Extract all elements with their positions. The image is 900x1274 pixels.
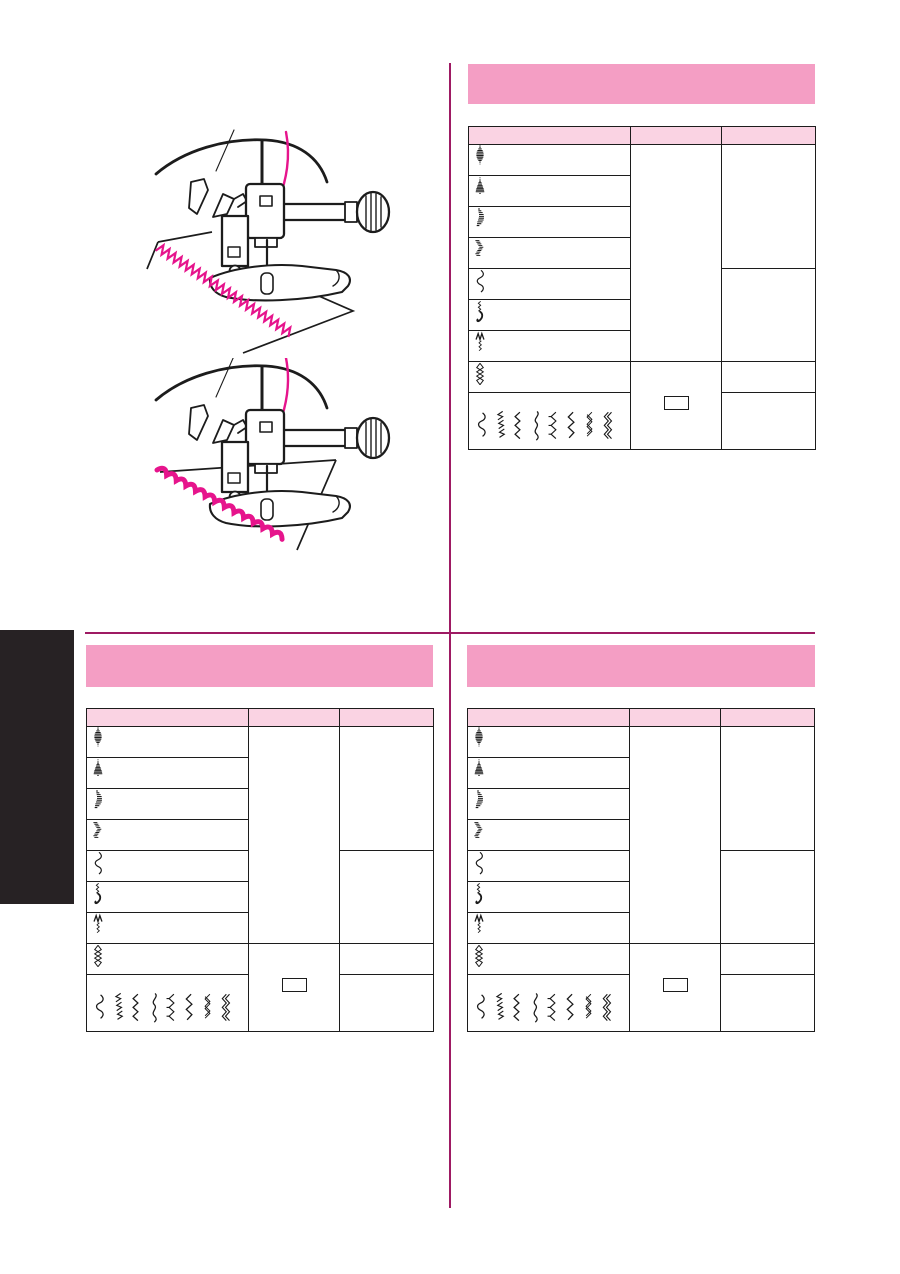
table-header-cell bbox=[721, 709, 815, 727]
satin-slant-stitch-icon bbox=[474, 238, 486, 263]
pointed-wave-stitch-icon bbox=[183, 991, 196, 1023]
section-banner-text bbox=[86, 645, 433, 661]
stitch-pattern-cell bbox=[87, 944, 249, 975]
pointed-wave-stitch-icon bbox=[565, 409, 578, 441]
diamond-chain-stitch-icon bbox=[92, 944, 104, 969]
stitch-table-section bbox=[468, 126, 815, 450]
scallop-stitch-sewing-illustration bbox=[140, 358, 425, 573]
overlock-stitch-icon bbox=[165, 991, 178, 1023]
empty-option-box-icon bbox=[664, 396, 689, 410]
overlock-stitch-icon bbox=[546, 991, 559, 1023]
stitch-pattern-cell bbox=[469, 238, 631, 269]
section-banner bbox=[467, 645, 815, 687]
stitch-pattern-cell bbox=[87, 913, 249, 944]
scallop-wave-stitch-icon bbox=[93, 991, 106, 1023]
decorative-patterns-cell bbox=[468, 975, 630, 1032]
decorative-patterns-cell bbox=[87, 975, 249, 1032]
setting-cell bbox=[340, 975, 434, 1032]
stitch-pattern-cell bbox=[468, 882, 630, 913]
satin-triangle-stitch-icon bbox=[473, 758, 485, 783]
table-header-cell bbox=[249, 709, 340, 727]
zigzag-stitch-icon bbox=[511, 409, 524, 441]
manual-page: { "document": { "kind": "sewing-machine-… bbox=[0, 0, 900, 1274]
setting-cell-merged bbox=[722, 269, 816, 362]
stitch-pattern-cell bbox=[469, 145, 631, 176]
scallop-wave-stitch-icon bbox=[475, 409, 488, 441]
scallop-wave-stitch-icon bbox=[92, 851, 104, 876]
stitch-settings-table bbox=[468, 126, 816, 450]
smooth-wave-stitch-icon bbox=[147, 991, 160, 1023]
satin-triangle-stitch-icon bbox=[474, 176, 486, 201]
zigzag-stitch-icon bbox=[510, 991, 523, 1023]
stitch-pattern-cell bbox=[468, 944, 630, 975]
satin-slant-stitch-icon bbox=[92, 820, 104, 845]
shell-tuck-stitch-icon bbox=[473, 882, 485, 907]
setting-cell-merged bbox=[340, 727, 434, 851]
table-header-cell bbox=[340, 709, 434, 727]
double-zigzag-stitch-icon bbox=[601, 409, 614, 441]
table-header-cell bbox=[468, 709, 630, 727]
setting-cell bbox=[722, 393, 816, 450]
stitch-pattern-cell bbox=[469, 269, 631, 300]
crossed-zigzag-stitch-icon bbox=[583, 409, 596, 441]
table-header-cell bbox=[630, 709, 721, 727]
setting-cell-merged bbox=[722, 145, 816, 269]
decorative-patterns-cell bbox=[469, 393, 631, 450]
smocking-stitch-icon bbox=[474, 331, 486, 356]
setting-cell-merged bbox=[721, 851, 815, 944]
feather-stitch-icon bbox=[492, 991, 505, 1023]
stitch-settings-table bbox=[467, 708, 815, 1032]
scallop-wave-stitch-icon bbox=[474, 991, 487, 1023]
stitch-pattern-cell bbox=[468, 820, 630, 851]
stitch-pattern-cell bbox=[469, 207, 631, 238]
diamond-chain-stitch-icon bbox=[474, 362, 486, 387]
stitch-pattern-cell bbox=[468, 851, 630, 882]
setting-cell-with-option bbox=[630, 944, 721, 1032]
setting-cell-merged bbox=[249, 727, 340, 944]
smocking-stitch-icon bbox=[92, 913, 104, 938]
column-divider-line bbox=[449, 63, 451, 1208]
setting-cell-merged bbox=[721, 727, 815, 851]
stitch-pattern-cell bbox=[468, 789, 630, 820]
table-header-cell bbox=[469, 127, 631, 145]
feather-stitch-icon bbox=[493, 409, 506, 441]
table-header-cell bbox=[631, 127, 722, 145]
setting-cell bbox=[721, 975, 815, 1032]
stitch-pattern-cell bbox=[87, 758, 249, 789]
double-zigzag-stitch-icon bbox=[219, 991, 232, 1023]
satin-oval-stitch-icon bbox=[473, 727, 485, 752]
smocking-stitch-icon bbox=[473, 913, 485, 938]
crossed-zigzag-stitch-icon bbox=[201, 991, 214, 1023]
section-banner-text bbox=[468, 64, 815, 80]
section-banner bbox=[86, 645, 433, 687]
section-banner bbox=[468, 64, 815, 104]
setting-cell-with-option bbox=[631, 362, 722, 450]
stitch-pattern-cell bbox=[468, 913, 630, 944]
stitch-pattern-cell bbox=[87, 851, 249, 882]
stitch-pattern-cell bbox=[469, 176, 631, 207]
table-header-cell bbox=[722, 127, 816, 145]
scallop-wave-stitch-icon bbox=[473, 851, 485, 876]
section-divider-line bbox=[85, 632, 815, 634]
smooth-wave-stitch-icon bbox=[529, 409, 542, 441]
diamond-chain-stitch-icon bbox=[473, 944, 485, 969]
setting-cell bbox=[722, 362, 816, 393]
crossed-zigzag-stitch-icon bbox=[582, 991, 595, 1023]
zigzag-stitch-icon bbox=[129, 991, 142, 1023]
satin-oval-stitch-icon bbox=[92, 727, 104, 752]
stitch-pattern-cell bbox=[468, 727, 630, 758]
stitch-settings-table bbox=[86, 708, 434, 1032]
table-header-cell bbox=[87, 709, 249, 727]
stitch-pattern-cell bbox=[468, 758, 630, 789]
shell-tuck-stitch-icon bbox=[474, 300, 486, 325]
satin-crescent-stitch-icon bbox=[473, 789, 485, 814]
stitch-pattern-cell bbox=[87, 820, 249, 851]
sewing-machine-foot bbox=[156, 358, 389, 526]
feather-stitch-icon bbox=[111, 991, 124, 1023]
satin-triangle-stitch-icon bbox=[92, 758, 104, 783]
setting-cell bbox=[340, 944, 434, 975]
setting-cell-merged bbox=[630, 727, 721, 944]
shell-tuck-stitch-icon bbox=[92, 882, 104, 907]
setting-cell bbox=[721, 944, 815, 975]
satin-crescent-stitch-icon bbox=[92, 789, 104, 814]
pointed-wave-stitch-icon bbox=[564, 991, 577, 1023]
setting-cell-with-option bbox=[249, 944, 340, 1032]
stitch-pattern-cell bbox=[87, 789, 249, 820]
stitch-table-section bbox=[86, 708, 433, 1032]
stitch-pattern-cell bbox=[469, 362, 631, 393]
setting-cell-merged bbox=[631, 145, 722, 362]
chapter-edge-tab bbox=[0, 630, 74, 904]
section-banner-text bbox=[467, 645, 815, 661]
satin-crescent-stitch-icon bbox=[474, 207, 486, 232]
double-zigzag-stitch-icon bbox=[600, 991, 613, 1023]
satin-slant-stitch-icon bbox=[473, 820, 485, 845]
setting-cell-merged bbox=[340, 851, 434, 944]
empty-option-box-icon bbox=[282, 978, 307, 992]
stitch-pattern-cell bbox=[87, 882, 249, 913]
stitch-pattern-cell bbox=[87, 727, 249, 758]
empty-option-box-icon bbox=[663, 978, 688, 992]
smooth-wave-stitch-icon bbox=[528, 991, 541, 1023]
stitch-pattern-cell bbox=[469, 300, 631, 331]
stitch-table-section bbox=[467, 708, 814, 1032]
satin-oval-stitch-icon bbox=[474, 145, 486, 170]
stitch-pattern-cell bbox=[469, 331, 631, 362]
zigzag-stitch-sewing-illustration bbox=[140, 128, 425, 368]
overlock-stitch-icon bbox=[547, 409, 560, 441]
scallop-wave-stitch-icon bbox=[474, 269, 486, 294]
